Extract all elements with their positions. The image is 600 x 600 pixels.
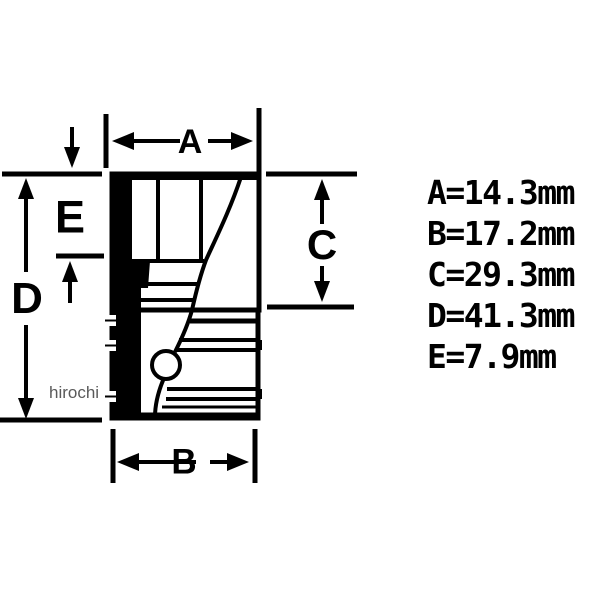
measurement-a: A=14.3mm <box>427 172 574 213</box>
c-arrow-down-icon <box>314 281 330 302</box>
watermark-text: hirochi <box>49 383 99 403</box>
dim-label-d: D <box>11 277 43 321</box>
measurement-list: A=14.3mm B=17.2mm C=29.3mm D=41.3mm E=7.… <box>427 172 574 377</box>
measurement-e: E=7.9mm <box>427 336 574 377</box>
dim-label-b: B <box>171 445 196 480</box>
e-arrow-down-icon <box>64 147 80 168</box>
dim-label-a: A <box>178 125 203 159</box>
diagram-canvas: A B C D E A=14.3mm B=17.2mm C=29.3mm D=4… <box>0 0 600 600</box>
ball-detent-hole <box>152 351 180 379</box>
dim-label-e: E <box>55 195 85 240</box>
e-arrow-up-icon <box>62 261 78 282</box>
dim-label-c: C <box>307 224 337 266</box>
socket-body <box>105 172 260 418</box>
measurement-d: D=41.3mm <box>427 295 574 336</box>
measurement-b: B=17.2mm <box>427 213 574 254</box>
d-arrow-down-icon <box>18 398 34 419</box>
a-arrow-right-icon <box>231 132 253 150</box>
measurement-c: C=29.3mm <box>427 254 574 295</box>
b-arrow-left-icon <box>117 453 139 471</box>
b-arrow-right-icon <box>227 453 249 471</box>
a-arrow-left-icon <box>112 132 134 150</box>
